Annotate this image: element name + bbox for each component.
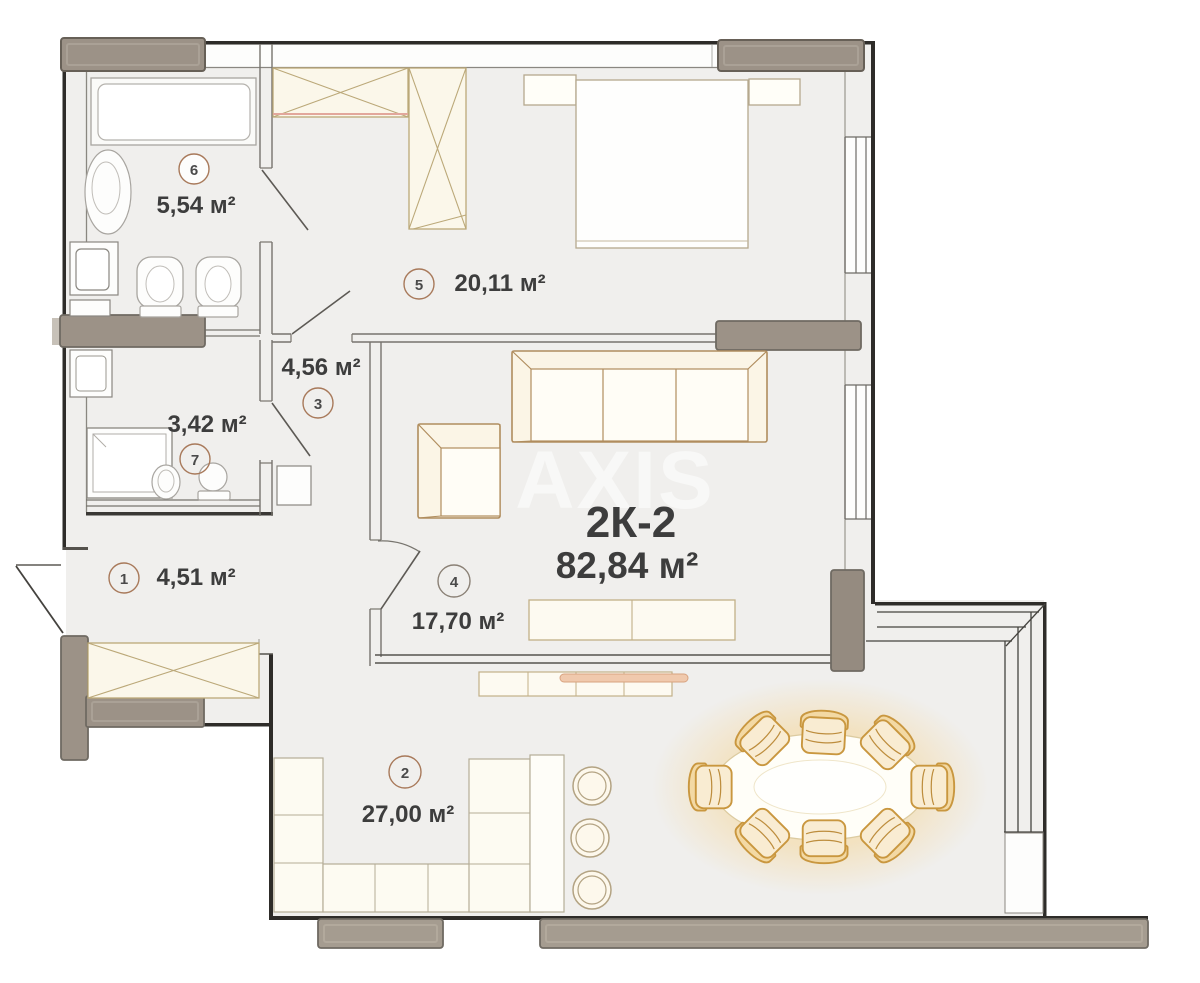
svg-text:3: 3 (314, 396, 322, 413)
svg-text:2К-2: 2К-2 (586, 498, 676, 547)
svg-text:4,51 м²: 4,51 м² (156, 564, 235, 591)
svg-text:6: 6 (190, 162, 198, 179)
svg-text:1: 1 (120, 571, 128, 588)
svg-text:4,56 м²: 4,56 м² (281, 354, 360, 381)
svg-text:3,42 м²: 3,42 м² (167, 411, 246, 438)
svg-text:27,00 м²: 27,00 м² (362, 801, 454, 828)
svg-text:17,70 м²: 17,70 м² (412, 608, 504, 635)
svg-text:4: 4 (450, 574, 459, 591)
svg-text:2: 2 (401, 765, 409, 782)
svg-text:5: 5 (415, 277, 423, 294)
svg-text:7: 7 (191, 452, 199, 469)
svg-text:82,84 м²: 82,84 м² (556, 545, 699, 586)
svg-text:5,54 м²: 5,54 м² (156, 192, 235, 219)
svg-text:20,11 м²: 20,11 м² (454, 270, 545, 297)
